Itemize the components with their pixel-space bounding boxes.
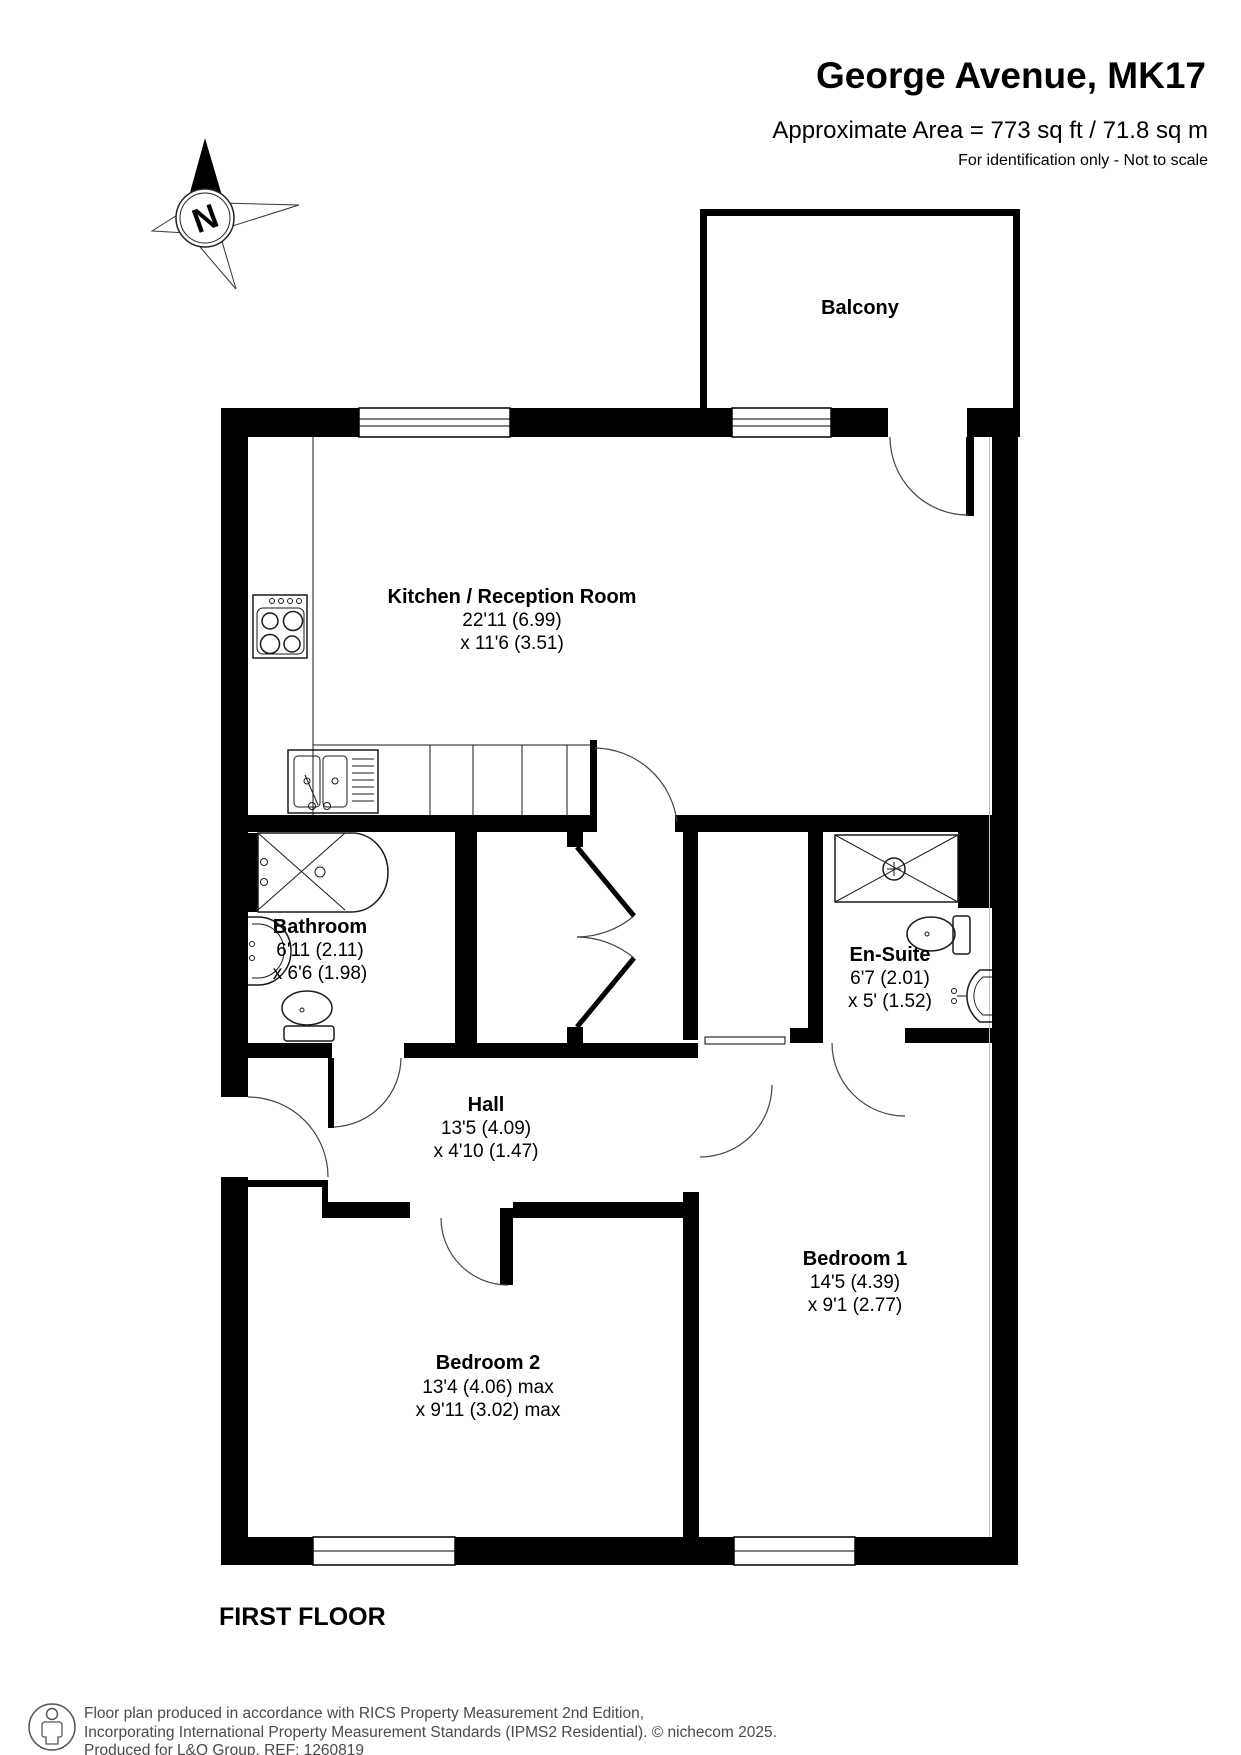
kitchen-window-1 <box>359 408 510 437</box>
bedroom1-door-arc <box>700 1085 772 1157</box>
bedroom1-dim2: x 9'1 (2.77) <box>808 1295 902 1316</box>
balcony-door-arc <box>890 437 968 515</box>
closet-door-arc-top <box>577 916 634 937</box>
hall-dim1: 13'5 (4.09) <box>441 1118 531 1139</box>
bathroom-label: Bathroom <box>273 916 367 938</box>
wall-bathroom-right <box>455 832 477 1058</box>
bedroom2-dim1: 13'4 (4.06) max <box>422 1377 554 1398</box>
wall-bottom-3 <box>855 1537 1018 1565</box>
wall-bathroom-bottom-west <box>221 1043 332 1058</box>
hob-icon <box>253 595 307 658</box>
wall-kitchen-bottom-west <box>248 815 597 832</box>
ensuite-door-arc <box>832 1043 905 1116</box>
balcony-wall-top <box>700 209 1020 216</box>
bathroom-dim2: x 6'6 (1.98) <box>273 963 367 984</box>
closet-door-leaf-top <box>577 847 634 916</box>
bedroom1-window <box>734 1537 855 1565</box>
bedroom2-door-leaf <box>500 1208 513 1285</box>
bathroom-door-arc <box>334 1058 401 1127</box>
balcony-door-leaf <box>966 437 974 516</box>
floorplan-page: George Avenue, MK17 Approximate Area = 7… <box>0 0 1241 1755</box>
kitchen-door-arc <box>595 748 677 822</box>
wall-top-4 <box>967 408 1020 437</box>
bedroom2-dim2: x 9'11 (3.02) max <box>416 1400 561 1421</box>
floorplan-canvas: George Avenue, MK17 Approximate Area = 7… <box>0 0 1241 1755</box>
bedroom2-door-arc <box>441 1218 508 1285</box>
walls <box>221 209 1020 1565</box>
bedroom2-window <box>313 1537 455 1565</box>
ensuite-dim1: 6'7 (2.01) <box>850 968 930 989</box>
wall-ensuite-bottom <box>905 1028 1018 1043</box>
ensuite-dim2: x 5' (1.52) <box>848 991 932 1012</box>
bedroom2-label: Bedroom 2 <box>436 1352 540 1374</box>
person-icon <box>29 1704 75 1750</box>
kitchen-door-leaf <box>590 740 597 832</box>
balcony-wall-left <box>700 209 707 408</box>
balcony-label: Balcony <box>821 297 900 319</box>
room-labels: Balcony Kitchen / Reception Room 22'11 (… <box>273 297 932 1421</box>
bedroom1-threshold <box>705 1037 785 1044</box>
wall-right <box>992 437 1018 1565</box>
footer-line1: Floor plan produced in accordance with R… <box>84 1705 644 1722</box>
approximate-area: Approximate Area = 773 sq ft / 71.8 sq m <box>772 117 1208 144</box>
wall-ensuite-west <box>808 832 823 1028</box>
header: George Avenue, MK17 Approximate Area = 7… <box>772 55 1208 169</box>
wall-bed1-bed2-divider <box>683 1192 699 1537</box>
identification-note: For identification only - Not to scale <box>958 152 1208 169</box>
closet-nib-bottom <box>567 1027 583 1043</box>
wall-bottom-1 <box>221 1537 313 1565</box>
door-arcs <box>248 437 968 1285</box>
wall-kitchen-bottom-east <box>675 815 992 832</box>
wall-bed2-top-b <box>513 1202 683 1218</box>
bathtub-icon <box>258 833 388 912</box>
floor-label: FIRST FLOOR <box>219 1603 386 1631</box>
bedroom1-dim1: 14'5 (4.39) <box>810 1272 900 1293</box>
kitchen-dim2: x 11'6 (3.51) <box>460 633 564 654</box>
compass-rose-icon: N <box>152 140 299 289</box>
closet-door-arc-bottom <box>577 937 634 958</box>
kitchen-label: Kitchen / Reception Room <box>388 586 637 608</box>
wall-left <box>221 408 248 1565</box>
hall-label: Hall <box>468 1094 505 1116</box>
wall-bed2-top-thin <box>221 1180 322 1187</box>
footer: Floor plan produced in accordance with R… <box>29 1704 777 1755</box>
kitchen-sink-icon <box>288 750 378 813</box>
windows <box>313 408 855 1565</box>
footer-line3: Produced for L&Q Group. REF: 1260819 <box>84 1742 364 1755</box>
ensuite-sink-icon <box>952 970 993 1022</box>
balcony-wall-right <box>1013 209 1020 408</box>
bathroom-toilet-icon <box>282 991 334 1041</box>
kitchen-dim1: 22'11 (6.99) <box>462 610 561 631</box>
closet-nib-top <box>567 832 583 847</box>
footer-line2: Incorporating International Property Mea… <box>84 1724 777 1741</box>
bathroom-dim1: 6'11 (2.11) <box>276 940 363 961</box>
bath-nib <box>248 833 258 912</box>
wall-bed1-top-stub <box>790 1028 823 1043</box>
wall-top-3 <box>831 408 888 437</box>
wall-top-1 <box>221 408 359 437</box>
closet-door-leaf-bottom <box>577 958 634 1027</box>
hall-dim2: x 4'10 (1.47) <box>433 1141 538 1162</box>
entrance-opening <box>221 1097 248 1177</box>
wall-bed2-connector <box>322 1180 328 1218</box>
bedroom1-label: Bedroom 1 <box>803 1248 907 1270</box>
ensuite-label: En-Suite <box>849 944 930 966</box>
kitchen-window-2 <box>732 408 831 437</box>
wall-bottom-2 <box>455 1537 734 1565</box>
shower-side-nib <box>958 832 992 908</box>
wall-lobby-west <box>683 832 698 1040</box>
wall-top-2 <box>510 408 732 437</box>
page-title: George Avenue, MK17 <box>816 55 1206 96</box>
entrance-door-arc <box>248 1097 328 1177</box>
wall-bed2-top-a <box>328 1202 410 1218</box>
shower-icon <box>835 835 958 902</box>
bathroom-door-leaf <box>328 1058 334 1128</box>
wall-bathroom-bottom-east <box>404 1043 698 1058</box>
